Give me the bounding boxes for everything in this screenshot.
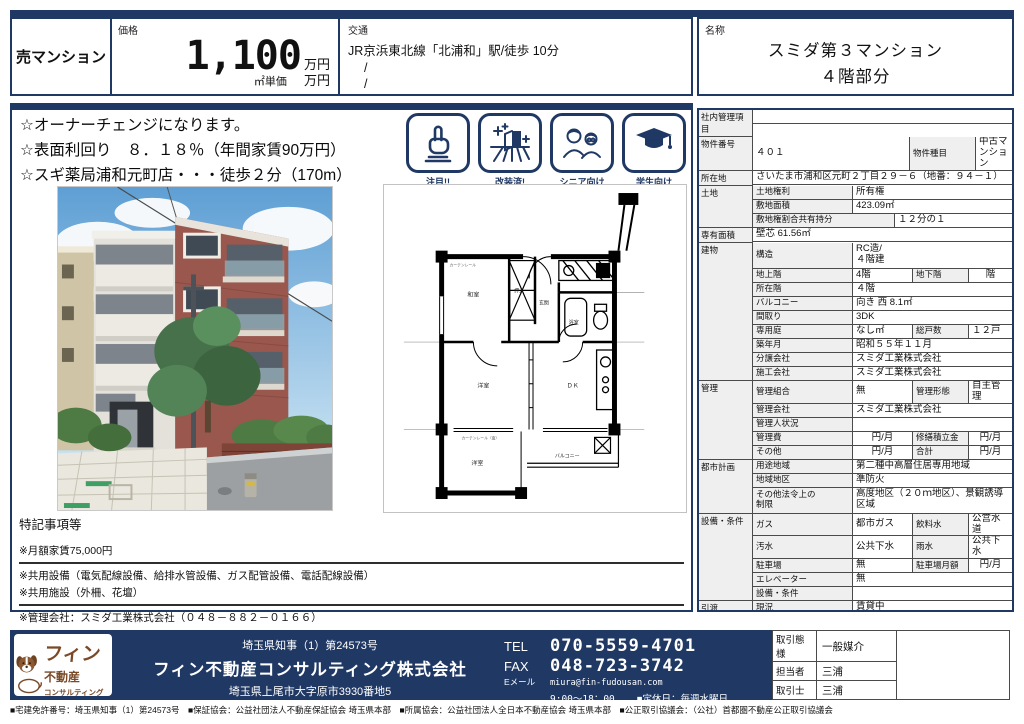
table-row: 汚水公共下水雨水公共下水 (753, 536, 1012, 559)
details-cell-value: 423.09㎡ (853, 200, 1012, 214)
logo-text-main: フィン (43, 639, 110, 666)
details-group-rows: 現況賃貸中引渡時期相談 (753, 601, 1012, 612)
details-cell-value: さいたま市浦和区元町２丁目２９－６（地番：９４－１） (753, 171, 1012, 185)
details-cell-value: ４０１ (753, 137, 910, 171)
table-row: 構造RC造/ ４階建 (753, 243, 1012, 269)
deal-label: 取引態様 (773, 631, 817, 661)
details-cell-value: 円/月 (969, 432, 1012, 446)
details-cell-value (753, 110, 1012, 124)
feature-badge: 改装済! (478, 113, 542, 188)
details-group: 都市計画用途地域第二種中高層住居専用地域地域地区準防火その他法令上の 制限高度地… (699, 460, 1012, 514)
plan-room-label: 玄関 (539, 299, 549, 306)
table-row: 設備・条件 (753, 587, 1012, 601)
details-cell-label: 修繕積立金 (913, 432, 969, 446)
table-row: さいたま市浦和区元町２丁目２９－６（地番：９４－１） (753, 171, 1012, 185)
badge-row: 注目!!改装済!シニア向け学生向け (406, 113, 686, 188)
footer-band: フィン 不動産 コンサルティング 埼玉県知事（1）第24573号 フィン不動産コ… (10, 630, 772, 700)
details-cell-value: スミダ工業株式会社 (853, 367, 1012, 381)
deal-value: 三浦 (817, 662, 896, 680)
details-cell-value: 円/月 (853, 446, 913, 460)
table-row: 間取り3DK (753, 311, 1012, 325)
tel-number: 070-5559-4701 (550, 636, 696, 656)
details-cell-label: 駐車場月額 (913, 559, 969, 573)
details-cell-value: 準防火 (853, 474, 1012, 488)
details-cell-value: 中古マンション (976, 137, 1012, 171)
feature-badge: 学生向け (622, 113, 686, 188)
table-row: 敷地面積423.09㎡ (753, 200, 1012, 214)
details-cell-label: 管理形態 (913, 381, 969, 404)
table-row: バルコニー向き 西 8.1㎡ (753, 297, 1012, 311)
plan-room-label: 洋室 (471, 459, 483, 467)
floor-plan: 和室 押入 玄関 浴室 洋室 ＤＫ バルコニー 洋室 カーテンレール カーテンレ… (383, 184, 687, 513)
details-cell-label: 分譲会社 (753, 353, 853, 367)
details-cell-value: 公共下水 (853, 536, 913, 559)
logo-text-sub: 不動産 (44, 668, 108, 685)
fax-label: FAX (504, 659, 550, 674)
details-cell-label: エレベーター (753, 573, 853, 587)
special-note-line: ※共用施設（外柵、花壇） (19, 585, 684, 600)
property-name-line1: スミダ第３マンション (705, 39, 1006, 65)
details-cell-label: 合計 (913, 446, 969, 460)
deal-row: 担当者三浦 (773, 662, 896, 681)
details-cell-value: 無 (853, 381, 913, 404)
details-cell-value: 円/月 (853, 432, 913, 446)
details-group-rows: 管理組合無管理形態自主管理管理会社スミダ工業株式会社管理人状況管理費円/月修繕積… (753, 381, 1012, 460)
details-group: 物件番号４０１物件種目中古マンション (699, 137, 1012, 171)
dog-logo-icon (15, 649, 43, 695)
details-cell-label: 管理組合 (753, 381, 853, 404)
building-photo-illustration (58, 187, 332, 510)
company-address: 埼玉県上尾市大字原市3930番地5 (116, 683, 504, 699)
name-label: 名称 (705, 22, 1006, 37)
note-divider (19, 604, 684, 606)
details-cell-value (853, 418, 1012, 432)
details-group: 建物構造RC造/ ４階建地上階4階地下階階所在階４階バルコニー向き 西 8.1㎡… (699, 243, 1012, 381)
details-group-label: 都市計画 (699, 460, 753, 514)
transport-label: 交通 (348, 22, 683, 37)
transport-line: / (348, 77, 683, 91)
contact-info: TEL 070-5559-4701 FAX 048-723-3742 Eメール … (504, 630, 772, 700)
details-cell-label: 管理会社 (753, 404, 853, 418)
student-icon (622, 113, 686, 173)
details-cell-value: １２分の１ (895, 214, 1012, 228)
plan-room-label: バルコニー (555, 453, 580, 459)
table-row: ４０１物件種目中古マンション (753, 137, 1012, 171)
details-cell-label: その他 (753, 446, 853, 460)
transport-line: JR京浜東北線「北浦和」駅/徒歩 10分 (348, 40, 683, 59)
details-group-label: 引渡 (699, 601, 753, 612)
plan-room-label: 押入 (514, 287, 524, 294)
renovated-icon (478, 113, 542, 173)
closed-days: ■定休日：毎週水曜日 (637, 691, 728, 705)
table-row: 駐車場無駐車場月額円/月 (753, 559, 1012, 573)
table-row: 施工会社スミダ工業株式会社 (753, 367, 1012, 381)
table-row: 地上階4階地下階階 (753, 269, 1012, 283)
deal-value: 三浦 (817, 681, 896, 699)
floor-plan-drawing: 和室 押入 玄関 浴室 洋室 ＤＫ バルコニー 洋室 カーテンレール カーテンレ… (384, 185, 686, 512)
legal-fineprint: ■宅建免許番号：埼玉県知事（1）第24573号 ■保証協会：公益社団法人不動産保… (10, 704, 1014, 716)
main-divider-bar (10, 103, 693, 110)
main-content-box: ☆オーナーチェンジになります。☆表面利回り ８．１８％（年間家賃90万円）☆スギ… (10, 110, 693, 612)
details-cell-value: 所有権 (853, 186, 1012, 200)
details-cell-value: １２戸 (969, 325, 1012, 339)
special-note-line: ※月額家賃75,000円 (19, 543, 684, 558)
details-cell-label: 用途地域 (753, 460, 853, 474)
details-group: 所在地さいたま市浦和区元町２丁目２９－６（地番：９４－１） (699, 171, 1012, 186)
details-cell-label: ガス (753, 514, 853, 537)
unit-price-unit: 万円 (304, 73, 330, 88)
details-cell-label: 物件種目 (910, 137, 976, 171)
details-group: 専有面積壁芯 61.56㎡ (699, 228, 1012, 243)
details-group: 社内管理項目 (699, 110, 1012, 137)
details-group-rows: ガス都市ガス飲料水公営水道汚水公共下水雨水公共下水駐車場無駐車場月額円/月エレベ… (753, 514, 1012, 602)
details-cell-value: 賃貸中 (853, 601, 1012, 612)
details-cell-value: RC造/ ４階建 (853, 243, 1012, 269)
details-cell-value: スミダ工業株式会社 (853, 353, 1012, 367)
details-cell-value: 3DK (853, 311, 1012, 325)
details-cell-value: 4階 (853, 269, 913, 283)
details-cell-label: 地上階 (753, 269, 853, 283)
highlights: ☆オーナーチェンジになります。☆表面利回り ８．１８％（年間家賃90万円）☆スギ… (20, 113, 352, 188)
details-cell-label: 敷地面積 (753, 200, 853, 214)
deal-value: 一般媒介 (817, 631, 896, 661)
details-cell-label: 築年月 (753, 339, 853, 353)
details-cell-value (853, 587, 1012, 601)
email-address: miura@fin-fudousan.com (550, 678, 663, 688)
company-logo: フィン 不動産 コンサルティング (14, 634, 112, 696)
business-hours: 9:00～18：00 (550, 691, 615, 705)
details-cell-label: 飲料水 (913, 514, 969, 537)
details-cell-label: 土地権利 (753, 186, 853, 200)
details-group-label: 社内管理項目 (699, 110, 753, 137)
details-cell-label: 構造 (753, 243, 853, 269)
table-row: その他円/月合計円/月 (753, 446, 1012, 460)
details-cell-value: 無 (853, 559, 913, 573)
details-cell-label: 汚水 (753, 536, 853, 559)
highlight-line: ☆オーナーチェンジになります。 (20, 113, 352, 138)
special-notes-title: 特記事項等 (19, 514, 684, 533)
details-group-label: 物件番号 (699, 137, 753, 171)
pointing-hand-icon (406, 113, 470, 173)
table-row: 管理会社スミダ工業株式会社 (753, 404, 1012, 418)
unit-price-label: ㎡単価 (254, 76, 287, 88)
plan-room-label: ＤＫ (567, 383, 579, 390)
company-name: フィン不動産コンサルティング株式会社 (116, 656, 504, 680)
details-cell-value: 階 (969, 269, 1012, 283)
details-cell-label: バルコニー (753, 297, 853, 311)
plan-room-label: 浴室 (569, 319, 579, 326)
details-cell-value: 無 (853, 573, 1012, 587)
header-box: 売マンション 価格 1,100 万円 ㎡単価 万円 交通 JR京浜東北線「北浦和… (10, 17, 693, 96)
details-group-rows (753, 110, 1012, 137)
table-row: 現況賃貸中 (753, 601, 1012, 612)
table-row: 分譲会社スミダ工業株式会社 (753, 353, 1012, 367)
details-group: 引渡現況賃貸中引渡時期相談 (699, 601, 1012, 612)
property-details-table: 社内管理項目物件番号４０１物件種目中古マンション所在地さいたま市浦和区元町２丁目… (697, 108, 1014, 612)
tel-label: TEL (504, 639, 550, 654)
details-cell-value: 円/月 (969, 446, 1012, 460)
plan-room-label: 和室 (467, 290, 479, 298)
details-cell-value: 公営水道 (969, 514, 1012, 537)
table-row: 築年月昭和５５年１１月 (753, 339, 1012, 353)
details-cell-value: ４階 (853, 283, 1012, 297)
details-cell-value: 昭和５５年１１月 (853, 339, 1012, 353)
details-group: 管理管理組合無管理形態自主管理管理会社スミダ工業株式会社管理人状況管理費円/月修… (699, 381, 1012, 460)
details-group-label: 専有面積 (699, 228, 753, 243)
table-row: 地域地区準防火 (753, 474, 1012, 488)
details-cell-value: 高度地区（２０ｍ地区）、景観誘導区域 (853, 488, 1012, 514)
transport-line: / (348, 61, 683, 75)
details-group-rows: さいたま市浦和区元町２丁目２９－６（地番：９４－１） (753, 171, 1012, 186)
highlight-line: ☆スギ薬局浦和元町店・・・徒歩２分（170m） (20, 163, 352, 188)
plan-note-label: カーテンレール (450, 263, 477, 268)
table-row: 敷地権割合共有持分１２分の１ (753, 214, 1012, 228)
details-group-rows: 用途地域第二種中高層住居専用地域地域地区準防火その他法令上の 制限高度地区（２０… (753, 460, 1012, 514)
feature-badge: 注目!! (406, 113, 470, 188)
details-cell-label: 管理人状況 (753, 418, 853, 432)
details-cell-label: 管理費 (753, 432, 853, 446)
transport-cell: 交通 JR京浜東北線「北浦和」駅/徒歩 10分 / / (340, 19, 691, 94)
table-row: 管理費円/月修繕積立金円/月 (753, 432, 1012, 446)
table-row: 管理人状況 (753, 418, 1012, 432)
table-row: 専用庭なし㎡総戸数１２戸 (753, 325, 1012, 339)
special-note-line: ※管理会社：スミダ工業株式会社（０４８－８８２－０１６６） (19, 610, 684, 625)
details-cell-value: スミダ工業株式会社 (853, 404, 1012, 418)
details-cell-label: 施工会社 (753, 367, 853, 381)
details-group-label: 土地 (699, 186, 753, 228)
details-cell-value: なし㎡ (853, 325, 913, 339)
table-row: 壁芯 61.56㎡ (753, 228, 1012, 242)
details-group-label: 管理 (699, 381, 753, 460)
special-note-line: ※共用設備（電気配線設備、給排水管設備、ガス配管設備、電話配線設備） (19, 568, 684, 583)
property-name-line2: ４階部分 (705, 65, 1006, 91)
details-cell-label: 地下階 (913, 269, 969, 283)
table-row: ガス都市ガス飲料水公営水道 (753, 514, 1012, 537)
building-photo (57, 186, 333, 511)
plan-room-label: 洋室 (477, 382, 489, 390)
details-cell-label: 専用庭 (753, 325, 853, 339)
details-group-rows: 土地権利所有権敷地面積423.09㎡敷地権割合共有持分１２分の１ (753, 186, 1012, 228)
company-info: 埼玉県知事（1）第24573号 フィン不動産コンサルティング株式会社 埼玉県上尾… (116, 630, 504, 700)
details-cell-label: その他法令上の 制限 (753, 488, 853, 514)
property-flyer-page: 売マンション 価格 1,100 万円 ㎡単価 万円 交通 JR京浜東北線「北浦和… (0, 0, 1024, 724)
details-cell-label: 所在階 (753, 283, 853, 297)
details-cell-label: 総戸数 (913, 325, 969, 339)
plan-note-label: カーテンレール（南） (461, 435, 499, 440)
logo-text-small: コンサルティング (44, 687, 108, 696)
details-cell-label: 間取り (753, 311, 853, 325)
price-cell: 価格 1,100 万円 ㎡単価 万円 (112, 19, 340, 94)
table-row: エレベーター無 (753, 573, 1012, 587)
details-cell-label: 雨水 (913, 536, 969, 559)
table-row: 用途地域第二種中高層住居専用地域 (753, 460, 1012, 474)
details-cell-value: 自主管理 (969, 381, 1012, 404)
details-cell-value: 向き 西 8.1㎡ (853, 297, 1012, 311)
table-row: 管理組合無管理形態自主管理 (753, 381, 1012, 404)
details-cell-label: 地域地区 (753, 474, 853, 488)
details-group: 土地土地権利所有権敷地面積423.09㎡敷地権割合共有持分１２分の１ (699, 186, 1012, 228)
table-row: 所在階４階 (753, 283, 1012, 297)
details-group: 設備・条件ガス都市ガス飲料水公営水道汚水公共下水雨水公共下水駐車場無駐車場月額円… (699, 514, 1012, 602)
license-number: 埼玉県知事（1）第24573号 (116, 637, 504, 653)
property-name-box: 名称 スミダ第３マンション ４階部分 (697, 17, 1014, 96)
details-group-rows: 構造RC造/ ４階建地上階4階地下階階所在階４階バルコニー向き 西 8.1㎡間取… (753, 243, 1012, 381)
seniors-icon (550, 113, 614, 173)
table-row (753, 110, 1012, 124)
details-cell-label: 敷地権割合共有持分 (753, 214, 895, 228)
deal-row: 取引態様一般媒介 (773, 631, 896, 662)
highlight-line: ☆表面利回り ８．１８％（年間家賃90万円） (20, 138, 352, 163)
deal-label: 取引士 (773, 681, 817, 699)
details-cell-label: 現況 (753, 601, 853, 612)
details-cell-value: 壁芯 61.56㎡ (753, 228, 1012, 242)
details-group-rows: 壁芯 61.56㎡ (753, 228, 1012, 243)
details-group-label: 所在地 (699, 171, 753, 186)
fax-number: 048-723-3742 (550, 656, 685, 676)
deal-empty-cell (897, 631, 1009, 699)
details-cell-label: 駐車場 (753, 559, 853, 573)
email-label: Eメール (504, 676, 550, 688)
details-cell-value: 都市ガス (853, 514, 913, 537)
details-cell-value: 第二種中高層住居専用地域 (853, 460, 1012, 474)
deal-info-table: 取引態様一般媒介担当者三浦取引士三浦 (772, 630, 1010, 700)
deal-row: 取引士三浦 (773, 681, 896, 699)
table-row: その他法令上の 制限高度地区（２０ｍ地区）、景観誘導区域 (753, 488, 1012, 514)
special-notes: 特記事項等 ※月額家賃75,000円※共用設備（電気配線設備、給排水管設備、ガス… (19, 514, 684, 627)
details-cell-label: 設備・条件 (753, 587, 853, 601)
table-row: 土地権利所有権 (753, 186, 1012, 200)
details-group-rows: ４０１物件種目中古マンション (753, 137, 1012, 171)
details-cell-value: 公共下水 (969, 536, 1012, 559)
note-divider (19, 562, 684, 564)
top-divider-bar (10, 10, 1014, 17)
details-group-label: 建物 (699, 243, 753, 381)
feature-badge: シニア向け (550, 113, 614, 188)
deal-label: 担当者 (773, 662, 817, 680)
property-category: 売マンション (12, 19, 112, 94)
details-group-label: 設備・条件 (699, 514, 753, 602)
details-cell-value: 円/月 (969, 559, 1012, 573)
